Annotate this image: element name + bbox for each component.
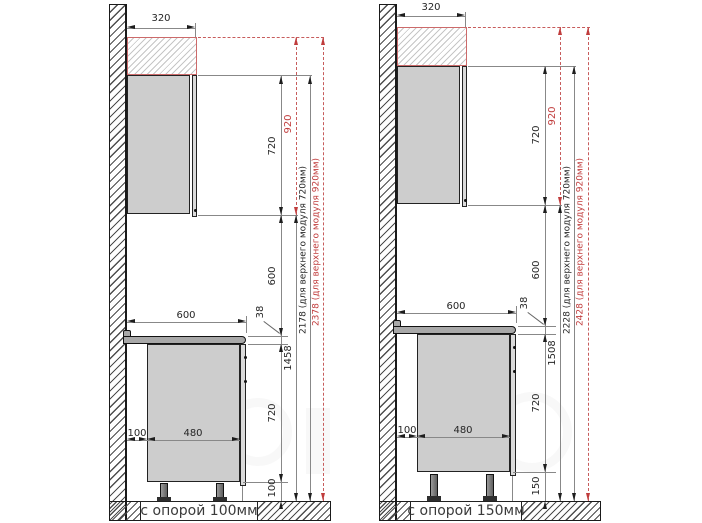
dim-arrow — [279, 501, 283, 509]
upper-extension-zone — [127, 37, 197, 75]
dim-arrow — [543, 66, 547, 74]
dim-label-leg-height: 100 — [268, 478, 278, 497]
dim-arrow — [543, 501, 547, 509]
dimension-line — [127, 322, 246, 323]
dim-arrow — [308, 493, 312, 501]
upper-extension-zone — [397, 27, 467, 66]
dim-arrow — [294, 493, 298, 501]
cabinet-leg — [430, 474, 438, 497]
dimension-line — [281, 76, 282, 501]
dim-arrow — [508, 310, 516, 314]
support-label: с опорой 100мм — [140, 501, 258, 521]
dim-arrow — [572, 66, 576, 74]
dim-label-counter-thickness: 38 — [256, 306, 266, 319]
base-cabinet-door — [240, 344, 246, 486]
dim-label-counter-depth: 600 — [176, 311, 195, 321]
extension-line — [518, 334, 556, 335]
dim-arrow — [279, 76, 283, 84]
dim-arrow — [586, 493, 590, 501]
dim-label-floor-to-upper: 1508 — [548, 340, 558, 365]
dim-label-floor-to-upper: 1458 — [284, 345, 294, 370]
dimension-line — [560, 205, 561, 501]
extension-line — [242, 486, 243, 501]
kitchen-dimensions-drawing: 320 720 920 600 38 1458 2178 (для верхне… — [0, 0, 702, 523]
dim-label-total: 2228 (для верхнего модуля 720мм) — [564, 166, 573, 334]
dim-label-base-depth: 480 — [453, 426, 472, 436]
dim-label-gap: 600 — [268, 266, 278, 285]
extension-line — [198, 215, 298, 216]
dim-arrow — [127, 319, 135, 323]
extension-line — [248, 336, 288, 337]
dimension-line-alt — [588, 27, 589, 501]
upper-cabinet-door — [192, 75, 197, 217]
dim-arrow — [321, 493, 325, 501]
base-cabinet — [147, 344, 240, 482]
dim-arrow — [321, 37, 325, 45]
dim-label-gap: 600 — [532, 260, 542, 279]
upper-cabinet — [397, 66, 460, 204]
extension-line — [512, 476, 513, 501]
dimension-line — [296, 215, 297, 501]
upper-cabinet — [127, 75, 190, 214]
dim-label-base-height: 720 — [268, 403, 278, 422]
dim-label-back-gap: 100 — [127, 429, 146, 439]
dim-arrow — [558, 27, 562, 35]
dim-arrow — [187, 25, 195, 29]
dim-label-total: 2178 (для верхнего модуля 720мм) — [300, 166, 309, 334]
dim-arrow — [279, 474, 283, 482]
dimension-line — [397, 313, 516, 314]
extension-line-alt — [198, 37, 324, 38]
base-cabinet — [417, 334, 510, 472]
extension-line — [465, 12, 466, 27]
dim-label-back-gap: 100 — [397, 426, 416, 436]
dim-arrow — [147, 437, 155, 441]
dim-arrow — [586, 27, 590, 35]
dim-label-top-depth: 320 — [151, 14, 170, 24]
dim-arrow — [543, 318, 547, 326]
dim-arrow — [308, 76, 312, 84]
dim-label-upper-height-alt: 920 — [284, 114, 294, 133]
dim-arrow — [543, 464, 547, 472]
dim-arrow — [417, 434, 425, 438]
dim-arrow — [502, 434, 510, 438]
dim-arrow — [294, 215, 298, 223]
cabinet-leg — [160, 483, 168, 498]
dim-label-upper-height-alt: 920 — [548, 106, 558, 125]
dim-label-leg-height: 150 — [532, 476, 542, 495]
countertop — [393, 326, 516, 334]
dim-arrow — [232, 437, 240, 441]
support-label: с опорой 150мм — [410, 501, 522, 521]
dim-arrow — [279, 215, 283, 223]
extension-line — [246, 316, 247, 333]
door-knob — [464, 199, 467, 202]
dim-label-total-alt: 2428 (для верхнего модуля 920мм) — [577, 158, 586, 326]
dimension-line-alt — [323, 37, 324, 501]
dim-label-counter-depth: 600 — [446, 302, 465, 312]
door-knob — [513, 346, 516, 349]
dim-arrow — [558, 205, 562, 213]
dim-arrow — [543, 197, 547, 205]
dim-label-counter-thickness: 38 — [520, 297, 530, 310]
dim-label-upper-height: 720 — [532, 125, 542, 144]
dim-arrow — [457, 13, 465, 17]
extension-line-alt — [468, 27, 590, 28]
dim-arrow — [294, 37, 298, 45]
extension-line — [468, 205, 562, 206]
dim-label-top-depth: 320 — [421, 3, 440, 13]
dimension-line — [397, 16, 465, 17]
door-knob — [194, 209, 197, 212]
extension-line — [518, 326, 556, 327]
dim-label-upper-height: 720 — [268, 136, 278, 155]
dimension-line — [127, 28, 195, 29]
dim-label-base-depth: 480 — [183, 429, 202, 439]
extension-line — [516, 306, 517, 323]
dim-arrow — [558, 197, 562, 205]
dim-arrow — [397, 310, 405, 314]
cabinet-leg — [216, 483, 224, 498]
leader-line — [263, 321, 280, 334]
dim-arrow — [558, 493, 562, 501]
dim-arrow — [279, 207, 283, 215]
dim-arrow — [127, 25, 135, 29]
door-knob — [244, 356, 247, 359]
dimension-line-alt — [296, 37, 297, 215]
wall-hatch — [379, 4, 397, 521]
countertop — [123, 336, 246, 344]
leader-line — [527, 312, 544, 325]
dim-arrow — [397, 13, 405, 17]
dim-arrow — [294, 207, 298, 215]
dim-label-total-alt: 2378 (для верхнего модуля 920мм) — [313, 158, 322, 326]
door-knob — [244, 380, 247, 383]
dim-arrow — [543, 205, 547, 213]
upper-cabinet-door — [462, 66, 467, 207]
dim-arrow — [572, 493, 576, 501]
door-knob — [513, 370, 516, 373]
dimension-line-alt — [560, 27, 561, 205]
extension-line — [513, 472, 556, 473]
extension-line — [198, 75, 312, 76]
dim-label-base-height: 720 — [532, 393, 542, 412]
cabinet-leg — [486, 474, 494, 497]
extension-line — [195, 23, 196, 37]
dim-arrow — [238, 319, 246, 323]
dimension-line — [545, 66, 546, 501]
base-cabinet-door — [510, 334, 516, 476]
wall-hatch — [109, 4, 127, 521]
